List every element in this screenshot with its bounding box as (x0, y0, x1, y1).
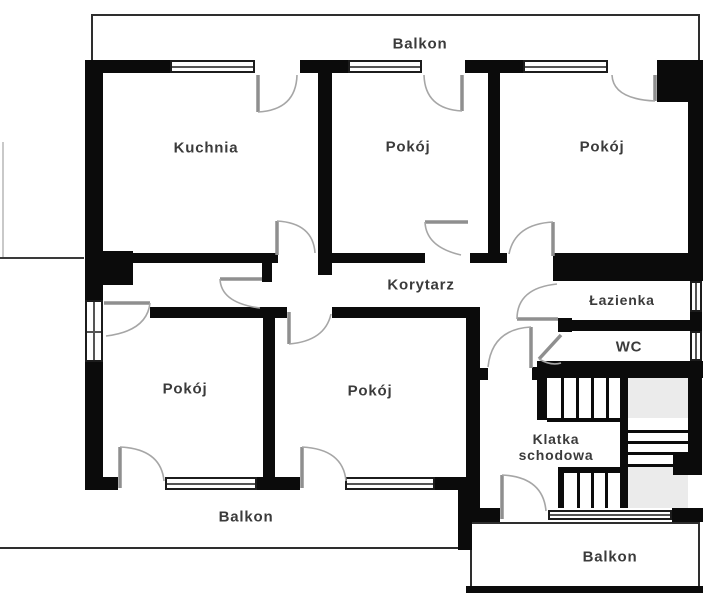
room-label-wc: WC (616, 338, 643, 355)
wall-segment (620, 378, 628, 508)
wall-segment (103, 251, 133, 285)
wall-segment (577, 473, 580, 508)
room-label-room-top-middle: Pokój (386, 138, 431, 155)
wall-segment (688, 378, 702, 475)
wall-segment (488, 73, 500, 263)
balcony-outline (91, 14, 700, 16)
room-top-middle-window (348, 60, 422, 73)
window-pane-line (172, 66, 253, 68)
wall-segment (628, 441, 688, 444)
staircase-balcony-window (548, 510, 672, 520)
wall-segment (466, 508, 500, 522)
stair-landing (628, 378, 688, 418)
wall-segment (262, 263, 272, 282)
wall-segment (558, 467, 564, 508)
wall-segment (568, 320, 702, 331)
room-bottom-left-side-window (85, 300, 103, 362)
wall-segment (688, 102, 703, 253)
room-label-balcony-bottom-right: Balkon (583, 548, 638, 565)
room-label-bathroom: Łazienka (589, 292, 655, 308)
wall-segment (263, 307, 275, 477)
wall-segment (537, 361, 703, 378)
balcony-outline (470, 522, 700, 524)
room-bottom-middle-balcony-window (345, 477, 435, 490)
window-pane-line (550, 514, 670, 516)
wall-segment (558, 318, 572, 332)
room-label-room-top-right: Pokój (580, 138, 625, 155)
window-pane-line (695, 333, 697, 359)
window-pane-line (695, 283, 697, 310)
bathroom-window (690, 281, 702, 312)
room-label-corridor: Korytarz (387, 276, 454, 293)
window-pane-line (167, 483, 255, 485)
wall-segment (85, 60, 103, 300)
wall-segment (547, 418, 628, 422)
balcony-outline (698, 522, 700, 588)
wall-segment (318, 73, 332, 275)
wall-segment (558, 467, 620, 473)
kitchen-window (170, 60, 255, 73)
window-pane-line (350, 66, 420, 68)
balcony-outline (0, 257, 84, 259)
wall-segment (133, 253, 278, 263)
balcony-outline (2, 142, 4, 257)
wall-segment (300, 60, 348, 73)
wall-segment (576, 378, 579, 418)
wall-segment (561, 378, 564, 418)
wall-segment (85, 60, 170, 73)
wall-segment (435, 477, 480, 490)
wall-segment (532, 367, 547, 380)
room-label-kitchen: Kuchnia (174, 139, 239, 156)
wall-segment (606, 378, 609, 418)
room-label-room-bottom-middle: Pokój (348, 382, 393, 399)
wall-segment (150, 307, 287, 318)
window-pane-line (87, 331, 101, 333)
wall-segment (553, 253, 703, 281)
room-label-room-bottom-left: Pokój (163, 380, 208, 397)
wall-segment (257, 477, 300, 490)
wall-segment (628, 430, 688, 433)
window-pane-line (525, 66, 606, 68)
wall-segment (466, 586, 703, 593)
wall-segment (85, 477, 118, 490)
balcony-outline (0, 547, 458, 549)
wall-segment (318, 253, 425, 263)
wall-segment (465, 60, 523, 73)
room-bottom-left-balcony-window (165, 477, 257, 490)
room-top-right-window (523, 60, 608, 73)
room-label-staircase: Klatka schodowa (498, 431, 614, 463)
room-label-balcony-top: Balkon (393, 35, 448, 52)
wall-segment (85, 362, 103, 477)
wall-segment (591, 378, 594, 418)
wc-window (690, 331, 702, 361)
room-label-balcony-bottom-left: Balkon (219, 508, 274, 525)
wall-segment (657, 60, 703, 102)
wall-segment (690, 312, 702, 320)
wall-segment (591, 473, 594, 508)
wall-segment (672, 508, 703, 522)
wall-segment (605, 473, 608, 508)
balcony-outline (698, 14, 700, 60)
wall-segment (332, 307, 480, 318)
balcony-outline (91, 14, 93, 60)
window-pane-line (347, 483, 433, 485)
floor-plan: BalkonKuchniaPokójPokójKorytarzŁazienkaW… (0, 0, 710, 603)
